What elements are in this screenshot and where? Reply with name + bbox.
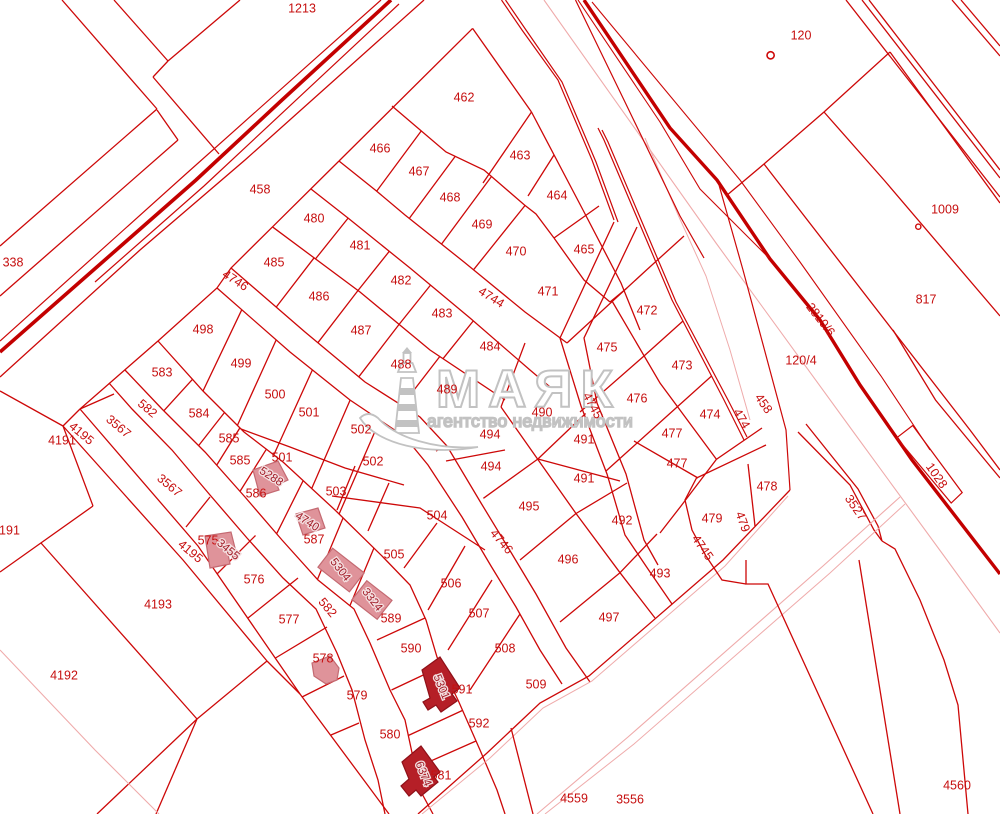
svg-text:3556: 3556 <box>616 792 644 806</box>
svg-text:1009: 1009 <box>931 202 959 216</box>
svg-text:580: 580 <box>380 727 401 741</box>
svg-text:490: 490 <box>532 405 553 419</box>
svg-text:493: 493 <box>650 566 671 580</box>
svg-text:501: 501 <box>299 405 320 419</box>
svg-text:466: 466 <box>370 141 391 155</box>
svg-text:585: 585 <box>230 453 251 467</box>
svg-text:475: 475 <box>597 340 618 354</box>
svg-text:472: 472 <box>637 303 658 317</box>
svg-text:4192: 4192 <box>50 668 78 682</box>
svg-text:4193: 4193 <box>144 597 172 611</box>
svg-text:509: 509 <box>526 677 547 691</box>
svg-text:4559: 4559 <box>560 791 588 805</box>
svg-text:592: 592 <box>469 716 490 730</box>
svg-text:482: 482 <box>391 273 412 287</box>
svg-text:498: 498 <box>193 322 214 336</box>
svg-text:120/4: 120/4 <box>785 353 816 367</box>
svg-text:504: 504 <box>427 508 448 522</box>
svg-text:501: 501 <box>272 450 293 464</box>
svg-text:120: 120 <box>791 28 812 42</box>
svg-text:579: 579 <box>347 688 368 702</box>
svg-text:458: 458 <box>250 182 271 196</box>
svg-text:4191: 4191 <box>48 433 76 447</box>
svg-text:486: 486 <box>309 289 330 303</box>
svg-text:495: 495 <box>519 499 540 513</box>
svg-text:489: 489 <box>437 382 458 396</box>
svg-text:505: 505 <box>384 547 405 561</box>
svg-text:476: 476 <box>627 391 648 405</box>
svg-text:338: 338 <box>3 255 24 269</box>
svg-text:581: 581 <box>431 768 452 782</box>
svg-text:4560: 4560 <box>943 778 971 792</box>
svg-text:471: 471 <box>538 284 559 298</box>
svg-text:484: 484 <box>480 339 501 353</box>
svg-text:469: 469 <box>472 217 493 231</box>
svg-text:578: 578 <box>313 651 334 665</box>
svg-text:491: 491 <box>574 432 595 446</box>
svg-text:483: 483 <box>432 306 453 320</box>
svg-text:584: 584 <box>189 406 210 420</box>
svg-text:477: 477 <box>667 456 688 470</box>
svg-text:500: 500 <box>265 387 286 401</box>
svg-text:507: 507 <box>469 606 490 620</box>
svg-text:583: 583 <box>152 365 173 379</box>
svg-text:479: 479 <box>702 511 723 525</box>
svg-text:478: 478 <box>757 479 778 493</box>
svg-text:591: 591 <box>452 682 473 696</box>
svg-text:463: 463 <box>510 148 531 162</box>
svg-text:502: 502 <box>351 422 372 436</box>
svg-text:576: 576 <box>244 572 265 586</box>
svg-text:502: 502 <box>363 454 384 468</box>
svg-text:508: 508 <box>495 641 516 655</box>
svg-text:585: 585 <box>219 431 240 445</box>
svg-text:499: 499 <box>231 356 252 370</box>
svg-text:477: 477 <box>662 426 683 440</box>
svg-text:488: 488 <box>391 357 412 371</box>
svg-text:491: 491 <box>574 471 595 485</box>
svg-text:480: 480 <box>304 211 325 225</box>
svg-text:586: 586 <box>246 486 267 500</box>
svg-text:474: 474 <box>700 407 721 421</box>
svg-text:481: 481 <box>350 238 371 252</box>
svg-text:496: 496 <box>558 552 579 566</box>
svg-text:587: 587 <box>304 532 325 546</box>
svg-text:497: 497 <box>599 610 620 624</box>
svg-text:473: 473 <box>672 358 693 372</box>
svg-text:4191: 4191 <box>0 523 20 537</box>
svg-text:817: 817 <box>916 292 937 306</box>
svg-text:494: 494 <box>480 427 501 441</box>
svg-text:503: 503 <box>326 484 347 498</box>
svg-text:485: 485 <box>264 255 285 269</box>
svg-text:577: 577 <box>279 612 300 626</box>
svg-text:470: 470 <box>506 244 527 258</box>
svg-text:1213: 1213 <box>288 1 316 15</box>
svg-text:590: 590 <box>401 641 422 655</box>
svg-text:464: 464 <box>547 188 568 202</box>
svg-text:589: 589 <box>381 611 402 625</box>
svg-text:465: 465 <box>574 242 595 256</box>
svg-text:487: 487 <box>351 323 372 337</box>
svg-text:468: 468 <box>440 190 461 204</box>
svg-text:492: 492 <box>612 513 633 527</box>
svg-text:467: 467 <box>409 164 430 178</box>
svg-text:494: 494 <box>481 459 502 473</box>
svg-text:462: 462 <box>454 90 475 104</box>
svg-text:506: 506 <box>441 576 462 590</box>
